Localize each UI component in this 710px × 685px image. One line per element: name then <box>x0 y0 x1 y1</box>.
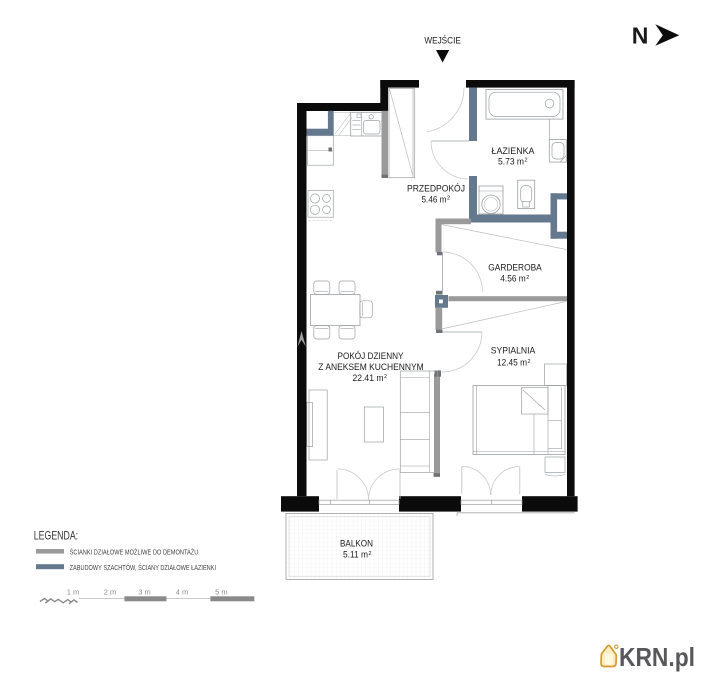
svg-text:3 m: 3 m <box>138 587 151 596</box>
svg-text:5 m: 5 m <box>215 587 228 596</box>
svg-text:ZABUDOWY SZACHTÓW, ŚCIANY DZIA: ZABUDOWY SZACHTÓW, ŚCIANY DZIAŁOWE ŁAZIE… <box>70 563 216 572</box>
svg-text:2: 2 <box>525 158 528 164</box>
svg-text:4.56 m: 4.56 m <box>500 274 526 284</box>
svg-text:POKÓJ DZIENNY: POKÓJ DZIENNY <box>338 351 404 361</box>
svg-text:2: 2 <box>369 551 372 557</box>
svg-text:4 m: 4 m <box>176 587 189 596</box>
svg-text:22.41 m: 22.41 m <box>353 373 384 383</box>
svg-text:1 m: 1 m <box>67 587 80 596</box>
svg-text:PRZEDPOKÓJ: PRZEDPOKÓJ <box>407 183 465 193</box>
svg-text:BALKON: BALKON <box>340 539 373 549</box>
svg-text:LEGENDA:: LEGENDA: <box>34 529 78 543</box>
svg-text:5.11 m: 5.11 m <box>343 550 368 560</box>
svg-text:WEJŚCIE: WEJŚCIE <box>424 35 461 47</box>
svg-text:Z ANEKSEM KUCHENNYM: Z ANEKSEM KUCHENNYM <box>318 362 424 372</box>
svg-text:2: 2 <box>528 359 531 365</box>
svg-text:ŁAZIENKA: ŁAZIENKA <box>492 146 535 156</box>
svg-text:2: 2 <box>526 275 529 281</box>
svg-text:N: N <box>632 22 649 48</box>
svg-text:2: 2 <box>447 196 450 202</box>
svg-text:KRN.pl: KRN.pl <box>619 642 695 672</box>
svg-text:SYPIALNIA: SYPIALNIA <box>491 345 536 355</box>
svg-text:ŚCIANKI DZIAŁOWE MOŻLIWE DO DE: ŚCIANKI DZIAŁOWE MOŻLIWE DO DEMONTAŻU <box>70 547 199 556</box>
svg-text:5.73 m: 5.73 m <box>498 156 524 166</box>
svg-text:2 m: 2 m <box>104 587 117 596</box>
svg-text:GARDEROBA: GARDEROBA <box>488 263 542 273</box>
svg-text:12.45 m: 12.45 m <box>497 358 527 368</box>
svg-text:2: 2 <box>384 374 387 380</box>
svg-text:5.46 m: 5.46 m <box>422 195 447 205</box>
